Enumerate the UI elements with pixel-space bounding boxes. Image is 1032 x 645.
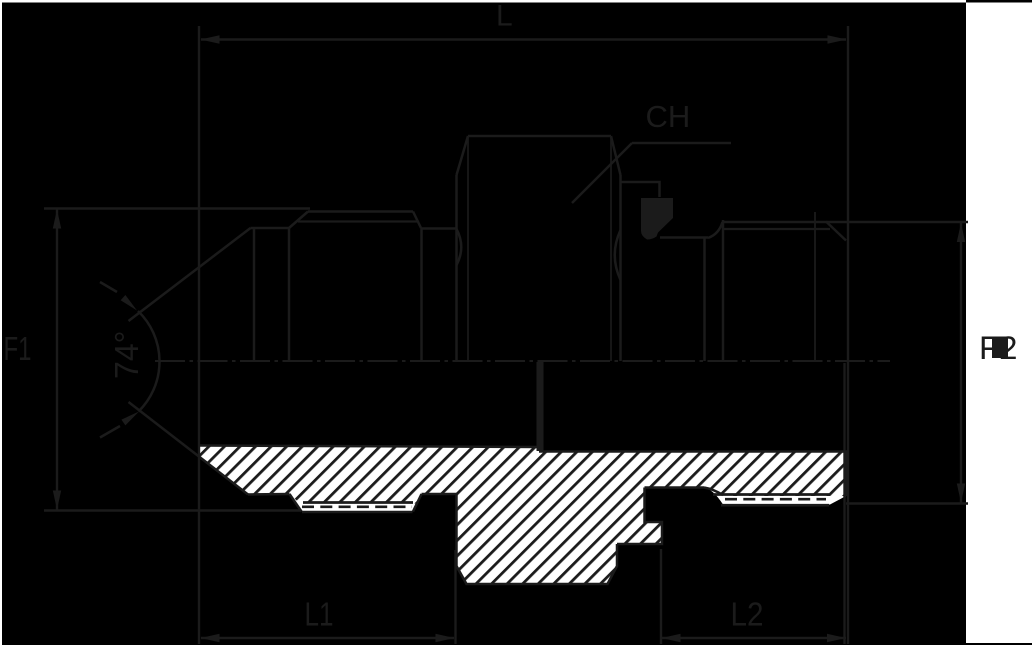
svg-text:L: L — [496, 0, 513, 33]
svg-text:F1: F1 — [4, 330, 32, 367]
svg-text:74°: 74° — [108, 331, 145, 380]
svg-text:CH: CH — [646, 99, 691, 134]
svg-text:L1: L1 — [305, 596, 334, 633]
svg-text:L2: L2 — [731, 596, 764, 633]
